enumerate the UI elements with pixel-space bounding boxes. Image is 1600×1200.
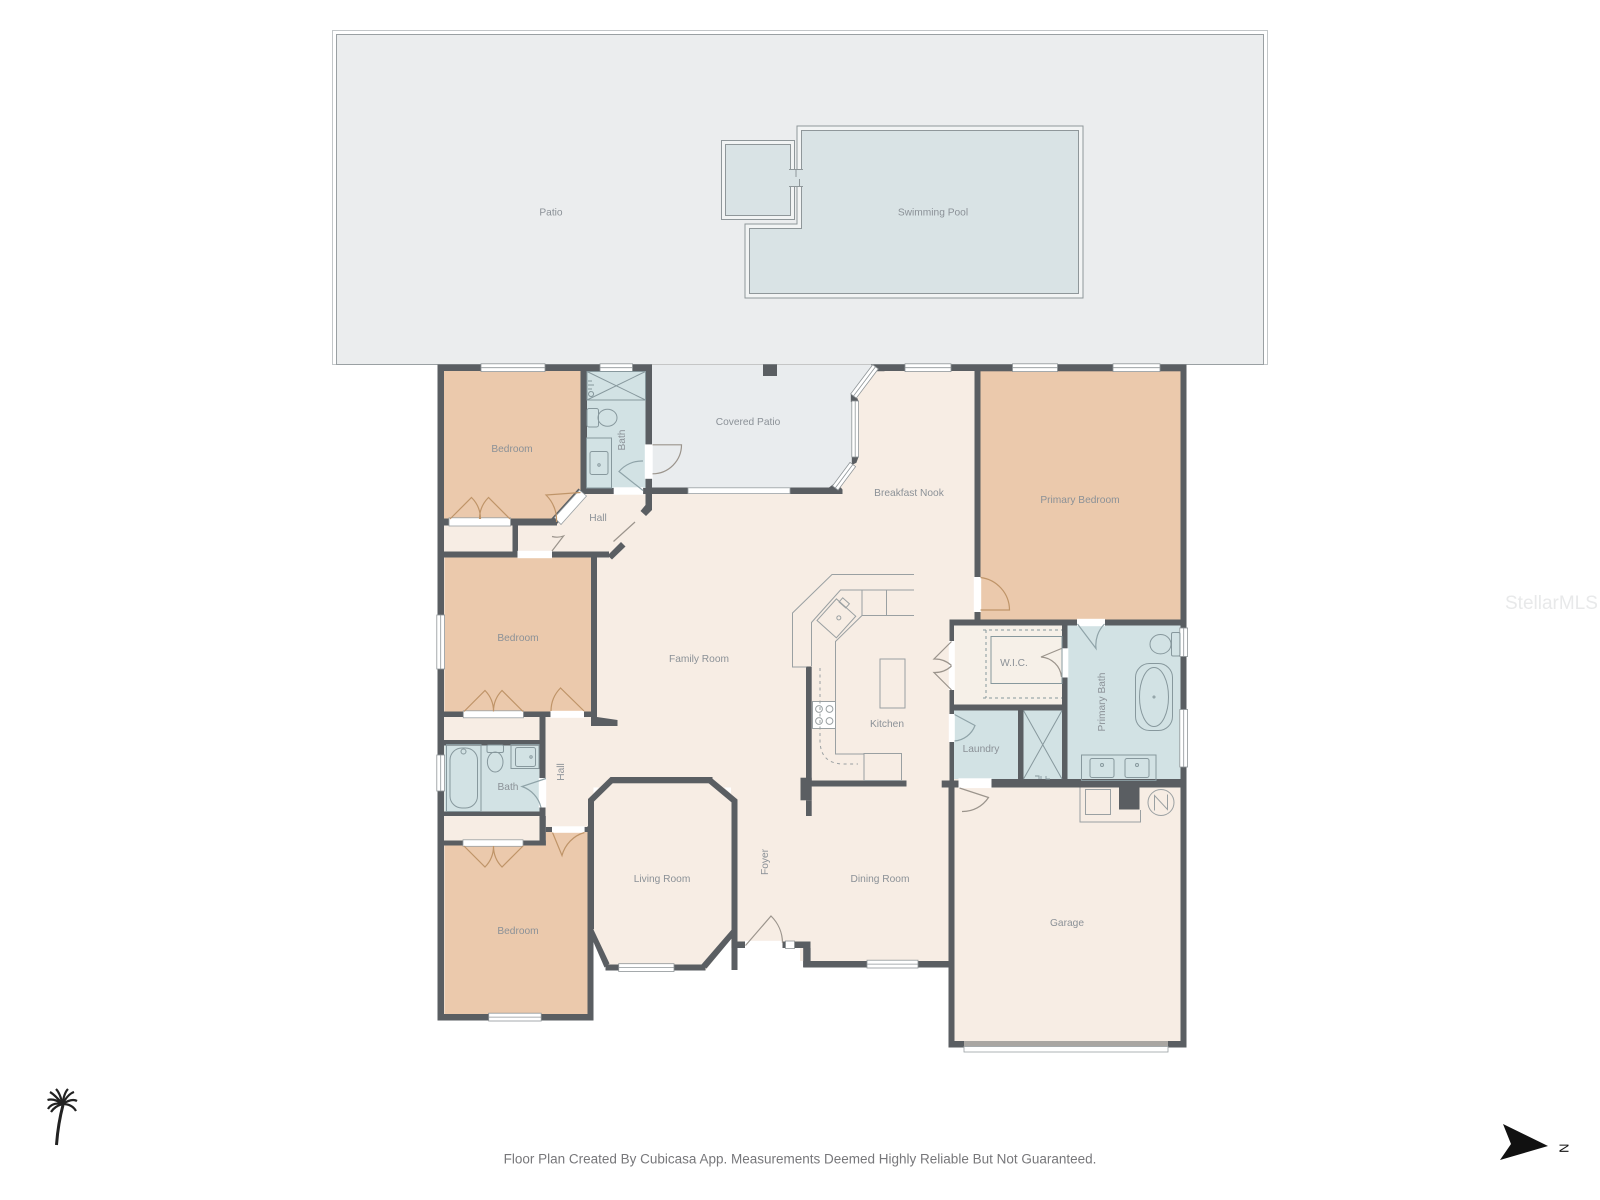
svg-text:W.I.C.: W.I.C.: [1000, 658, 1028, 669]
svg-text:Garage: Garage: [1050, 918, 1084, 929]
svg-text:Bedroom: Bedroom: [497, 926, 538, 937]
svg-text:Covered Patio: Covered Patio: [716, 417, 781, 428]
svg-text:Dining Room: Dining Room: [851, 874, 910, 885]
svg-text:Living Room: Living Room: [634, 874, 691, 885]
svg-text:Patio: Patio: [539, 208, 563, 219]
svg-text:Primary Bath: Primary Bath: [1097, 673, 1108, 732]
svg-text:Foyer: Foyer: [760, 848, 771, 875]
svg-text:Bedroom: Bedroom: [491, 444, 532, 455]
svg-text:StellarMLS: StellarMLS: [1505, 593, 1598, 614]
svg-text:Hall: Hall: [556, 763, 567, 781]
svg-text:Bedroom: Bedroom: [497, 633, 538, 644]
svg-text:Floor Plan Created By Cubicasa: Floor Plan Created By Cubicasa App. Meas…: [504, 1152, 1097, 1167]
svg-text:Breakfast Nook: Breakfast Nook: [874, 488, 945, 499]
svg-text:Hall: Hall: [589, 513, 607, 524]
svg-text:Bath: Bath: [617, 430, 628, 451]
svg-text:Laundry: Laundry: [963, 744, 1001, 755]
svg-text:Primary Bedroom: Primary Bedroom: [1040, 495, 1119, 506]
svg-text:Family Room: Family Room: [669, 654, 729, 665]
svg-text:N: N: [1557, 1144, 1572, 1153]
svg-text:Bath: Bath: [498, 782, 519, 793]
svg-text:Swimming Pool: Swimming Pool: [898, 208, 968, 219]
svg-text:Kitchen: Kitchen: [870, 719, 904, 730]
